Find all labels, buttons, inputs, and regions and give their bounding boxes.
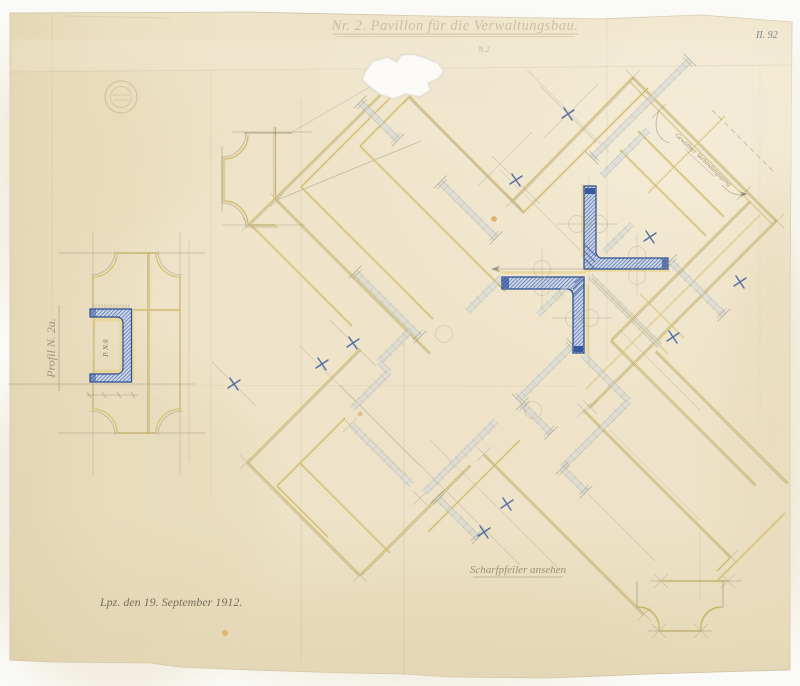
svg-text:N.2: N.2 (477, 45, 489, 54)
svg-text:Profil N. 2a.: Profil N. 2a. (44, 318, 58, 379)
svg-text:P. N:8: P. N:8 (102, 339, 110, 358)
svg-text:II. 92: II. 92 (755, 30, 778, 41)
svg-text:Lpz. den 19. September 1912.: Lpz. den 19. September 1912. (99, 595, 242, 609)
svg-text:Scharfpfeiler ansehen: Scharfpfeiler ansehen (470, 564, 567, 576)
svg-text:Nr. 2. Pavillon für die Verwal: Nr. 2. Pavillon für die Verwaltungsbau. (331, 18, 579, 34)
